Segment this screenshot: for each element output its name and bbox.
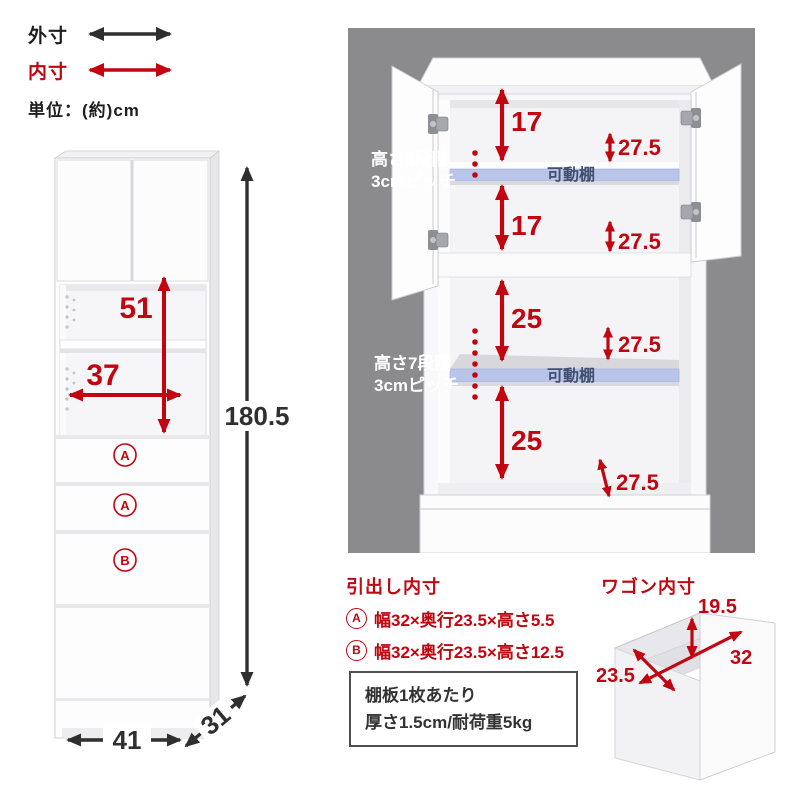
open-interior-diagram: 17 17 25 25 27.5 27.5 27.5 27.5 可動棚 可動棚 … (348, 28, 755, 553)
upper-pitch-note-line2: 3cmピッチ (371, 172, 456, 191)
legend-inner-row: 内寸 (28, 52, 180, 88)
pitch-hole-dots-upper (472, 150, 478, 178)
drawer-spec-row-a: A 幅32×奥行23.5×高さ5.5 (346, 606, 606, 631)
svg-text:A: A (120, 498, 130, 513)
legend-outer-row: 外寸 (28, 16, 180, 52)
shelf-board-note: 棚板1枚あたり 厚さ1.5cm/耐荷重5kg (349, 671, 578, 747)
outer-dimension-label: 外寸 (28, 21, 68, 48)
upper-depth2-value: 27.5 (618, 229, 661, 254)
wagon-height-value: 19.5 (698, 596, 737, 618)
drawer-a-dimensions: 幅32×奥行23.5×高さ5.5 (374, 606, 554, 631)
drawer-specs: 引出し内寸 A 幅32×奥行23.5×高さ5.5 B 幅32×奥行23.5×高さ… (346, 573, 606, 670)
cabinet-front-illustration (55, 151, 219, 738)
legend: 外寸 内寸 単位：(約)cm (28, 16, 180, 121)
wagon-depth-value: 23.5 (596, 665, 635, 687)
unit-note: 単位：(約)cm (28, 96, 180, 121)
wagon-box-illustration (615, 613, 775, 780)
upper-pitch-note-line1: 高さ3段階 (371, 149, 448, 169)
shelf-note-line1: 棚板1枚あたり (365, 682, 562, 709)
black-double-arrow-icon (80, 26, 180, 42)
furniture-dimension-diagram: 外寸 内寸 単位：(約)cm (0, 0, 800, 800)
lower-depth1-value: 27.5 (618, 332, 661, 357)
wagon-diagram: 19.5 32 23.5 (588, 593, 800, 800)
red-double-arrow-icon (80, 62, 180, 78)
inner-width-value: 37 (86, 359, 119, 392)
lower-depth2-value: 27.5 (616, 470, 659, 495)
drawer-specs-title: 引出し内寸 (346, 573, 606, 599)
lower-pitch-note-line1: 高さ7段階 (374, 353, 451, 373)
front-view-diagram: A A B 51 37 180.5 41 31 (40, 135, 300, 760)
upper-seg1-value: 17 (511, 106, 542, 137)
inner-height-value: 51 (119, 292, 152, 325)
movable-shelf-label-lower: 可動棚 (547, 366, 595, 385)
total-height-value: 180.5 (224, 401, 289, 431)
lower-pitch-note-line2: 3cmピッチ (374, 376, 459, 395)
wagon-width-value: 32 (730, 647, 752, 669)
inner-dimension-label: 内寸 (28, 57, 68, 84)
lower-seg2-value: 25 (511, 425, 542, 456)
drawer-b-badge: B (346, 640, 367, 661)
svg-text:B: B (120, 553, 129, 568)
upper-seg2-value: 17 (511, 210, 542, 241)
drawer-a-badge: A (346, 608, 367, 629)
open-cabinet-illustration (392, 58, 741, 553)
drawer-b-dimensions: 幅32×奥行23.5×高さ12.5 (374, 638, 564, 663)
drawer-spec-row-b: B 幅32×奥行23.5×高さ12.5 (346, 638, 606, 663)
svg-text:A: A (120, 448, 130, 463)
upper-depth1-value: 27.5 (618, 135, 661, 160)
lower-seg1-value: 25 (511, 303, 542, 334)
outer-width-value: 41 (113, 725, 142, 755)
shelf-note-line2: 厚さ1.5cm/耐荷重5kg (365, 709, 562, 736)
movable-shelf-label-upper: 可動棚 (547, 165, 595, 184)
